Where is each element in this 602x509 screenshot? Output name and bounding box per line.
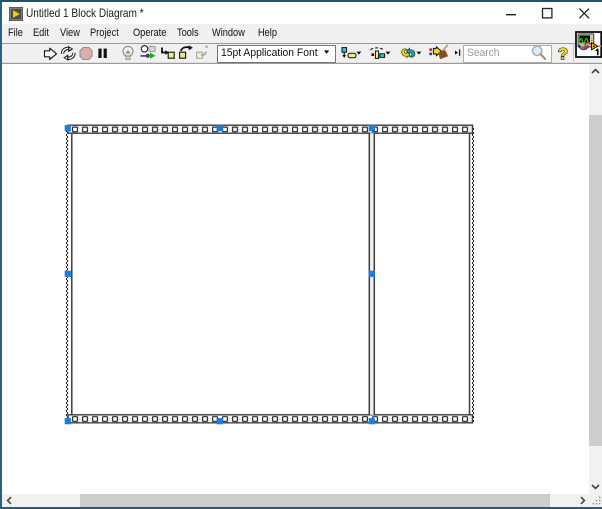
svg-text:?: ? bbox=[558, 45, 568, 64]
